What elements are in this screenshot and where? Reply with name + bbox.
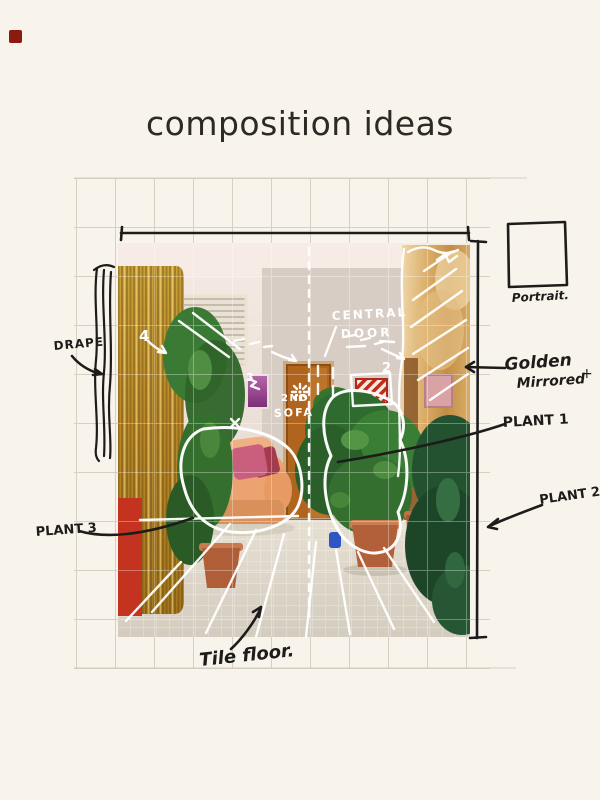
- board-graphic: CENTRAL DOOR 4 2 3 2ND SOFA: [0, 0, 600, 800]
- second-sofa-label-line2: SOFA: [274, 406, 314, 420]
- central-door-label-line2: DOOR: [341, 325, 393, 341]
- plant1-label: PLANT 1: [502, 412, 569, 431]
- second-sofa-label-line1: 2ND: [281, 393, 309, 404]
- portrait-label: Portrait.: [511, 288, 569, 305]
- plus-mark: +: [581, 366, 593, 382]
- photo-grid-overlay: [118, 243, 470, 637]
- plant2-label: PLANT 2: [538, 485, 600, 508]
- plant2-arrow: [488, 505, 542, 529]
- number-4-label: 4: [139, 327, 149, 345]
- golden-mirrored-label-line1: Golden: [504, 350, 572, 375]
- portrait-frame: [508, 222, 567, 287]
- golden-mirrored-label-line2: Mirrored: [516, 371, 587, 392]
- reference-photo: [118, 243, 492, 637]
- composition-board: composition ideas: [0, 0, 600, 800]
- number-3-label: 3: [246, 371, 254, 384]
- number-2-label: 2: [382, 361, 391, 376]
